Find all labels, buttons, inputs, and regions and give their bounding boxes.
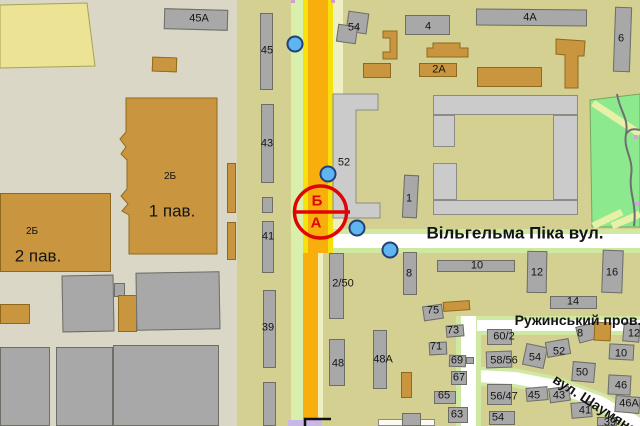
building <box>260 13 273 90</box>
building <box>346 11 370 35</box>
building <box>403 252 417 295</box>
building-label: 14 <box>567 297 579 308</box>
building-label: 39 <box>604 418 616 426</box>
building <box>261 104 274 183</box>
building <box>401 372 412 398</box>
building-label: 56/47 <box>490 392 518 403</box>
street-casing <box>477 376 640 426</box>
building-label: 46 <box>615 381 627 392</box>
building <box>601 250 623 294</box>
building <box>383 31 397 59</box>
building-label: 41 <box>579 406 591 417</box>
park-poi-dot <box>635 202 639 206</box>
building-label: 45 <box>261 46 273 57</box>
road-verge <box>318 253 323 421</box>
building-label: 48 <box>332 359 344 370</box>
building <box>363 63 391 78</box>
building <box>262 197 273 213</box>
street-surface <box>477 320 640 331</box>
street-surface <box>333 234 640 248</box>
building <box>476 9 587 27</box>
main-road <box>303 253 318 421</box>
building-label: 75 <box>427 306 439 317</box>
building <box>614 395 640 414</box>
building <box>419 63 457 77</box>
building-label: 1 <box>406 194 412 205</box>
road-end-area <box>288 420 322 426</box>
building-label: 2А <box>432 65 445 76</box>
building-label: 58/56 <box>490 356 518 367</box>
road-verge <box>333 0 343 229</box>
building-label: 12 <box>531 268 543 279</box>
crossing-mark <box>291 0 295 3</box>
building-label: 65 <box>438 391 450 402</box>
map-canvas[interactable]: Вільгельма Піка вул.Ружинський пров.вул.… <box>0 0 640 426</box>
building <box>405 15 450 35</box>
poi-marker[interactable] <box>350 221 365 236</box>
building-label: 54 <box>348 23 360 34</box>
building-label: 50 <box>576 368 588 379</box>
building-label: 10 <box>615 349 627 360</box>
building-label: 10 <box>471 261 483 272</box>
poi-marker[interactable] <box>383 243 398 258</box>
building <box>443 300 471 312</box>
building <box>378 419 435 426</box>
park-poi-dot <box>634 135 638 139</box>
building-label: 8 <box>406 269 412 280</box>
building <box>329 339 345 386</box>
building <box>571 361 596 383</box>
street-surface <box>461 316 476 426</box>
building-label: 48А <box>373 355 393 366</box>
district-area-left <box>0 0 237 426</box>
building <box>607 374 631 395</box>
building <box>427 43 468 57</box>
road-verge <box>291 253 303 421</box>
building <box>434 391 456 404</box>
building <box>433 95 578 115</box>
building <box>548 386 571 404</box>
building <box>553 115 578 200</box>
building-label: 6 <box>618 34 624 45</box>
building <box>522 343 548 369</box>
building <box>263 382 276 426</box>
park-path <box>612 214 640 226</box>
building <box>433 115 455 147</box>
park-path <box>593 103 640 134</box>
street-casing <box>333 248 640 253</box>
building-label: 4 <box>425 22 431 33</box>
building <box>570 401 592 419</box>
poi-marker[interactable] <box>288 37 303 52</box>
poi-marker[interactable] <box>321 167 336 182</box>
building <box>597 417 617 426</box>
building <box>433 200 578 215</box>
building-label: 39 <box>262 323 274 334</box>
building-label: 71 <box>430 342 442 353</box>
building <box>422 304 444 322</box>
building-label: 43 <box>261 139 273 150</box>
street-label: вул. Шаумяна <box>551 372 640 426</box>
building-label: 54 <box>529 353 541 364</box>
building <box>373 330 387 389</box>
building-label: 43 <box>553 391 565 402</box>
building-label: 52 <box>553 347 565 358</box>
building-label: 16 <box>606 268 618 279</box>
street-surface <box>477 376 640 426</box>
crossing-mark <box>331 0 335 3</box>
park-stream <box>617 94 635 226</box>
building <box>489 411 515 425</box>
building <box>477 67 542 87</box>
building <box>545 338 571 358</box>
park-stream <box>626 129 640 134</box>
building <box>433 163 457 200</box>
building-label: 41 <box>262 232 274 243</box>
building <box>402 175 419 219</box>
building-label: 45 <box>528 391 540 402</box>
building <box>550 296 597 309</box>
building-label: 54 <box>492 413 504 424</box>
main-road <box>308 0 328 253</box>
building-label: 46А <box>619 399 639 410</box>
building-label: 4А <box>523 13 536 24</box>
building <box>525 386 548 402</box>
building <box>527 251 548 293</box>
building-label: 2/50 <box>332 279 353 290</box>
building <box>613 7 632 73</box>
building <box>329 253 344 319</box>
building <box>262 221 274 273</box>
building <box>556 39 585 88</box>
street-casing <box>477 331 640 335</box>
park-polygon <box>590 94 640 227</box>
building <box>402 413 421 426</box>
building <box>263 290 276 368</box>
park-path <box>593 212 622 226</box>
building <box>437 260 515 272</box>
building <box>429 342 448 356</box>
building <box>486 351 513 369</box>
building <box>609 343 635 360</box>
building <box>487 384 512 405</box>
